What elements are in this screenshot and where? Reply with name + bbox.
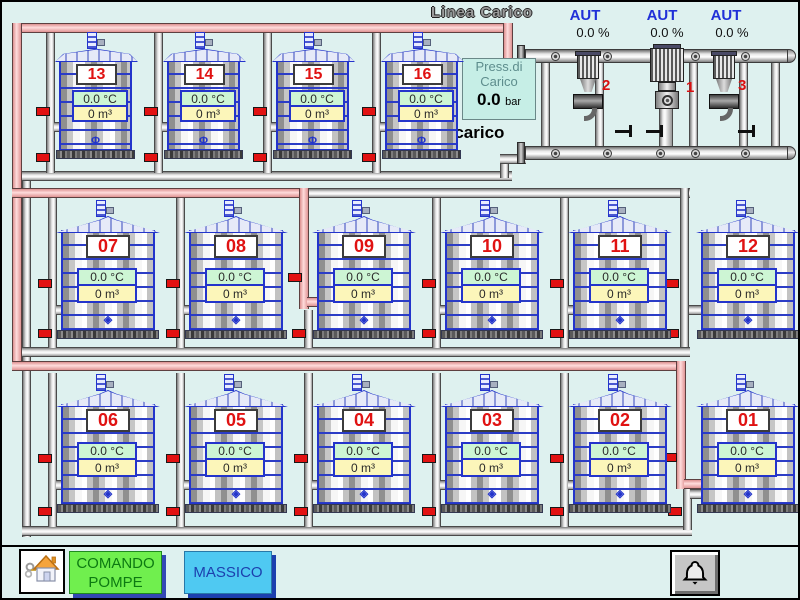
tank-chimney-stub [362, 207, 370, 214]
tank-volume: 0 m³ [77, 458, 137, 477]
tank-base [273, 150, 352, 159]
tank-valve-icon: ◈ [319, 487, 409, 500]
tank-number-plate: 08 [214, 235, 258, 258]
tank-cone [57, 217, 159, 232]
tank-volume: 0 m³ [589, 284, 649, 303]
pipe-endcap [787, 146, 796, 160]
pressure-label: Carico [463, 74, 535, 89]
pump-cone [580, 79, 596, 92]
tank-chimney-stub [746, 381, 754, 388]
tank-valve-icon: ◈ [191, 487, 281, 500]
pipe-segment [541, 60, 550, 148]
tank-volume: 0 m³ [398, 105, 454, 122]
tank-chimney-stub [618, 207, 626, 214]
tank-base [185, 330, 287, 339]
carico-line [12, 361, 686, 371]
tank-volume: 0 m³ [717, 458, 777, 477]
valve-indicator [166, 329, 180, 338]
valve-indicator [144, 153, 158, 162]
valve-indicator [550, 329, 564, 338]
tank-base [313, 330, 415, 339]
home-button[interactable] [19, 549, 65, 594]
tank-valve-icon: ◈ [63, 313, 153, 326]
pipe-segment [680, 188, 689, 352]
alarm-button[interactable] [670, 550, 720, 596]
comando-pompe-button[interactable]: COMANDO POMPE [69, 551, 162, 594]
tank-base [569, 504, 671, 513]
tank-12[interactable]: 12 0.0 °C 0 m³ ◈ [701, 230, 795, 331]
manual-valve-icon [660, 125, 663, 137]
tank-volume: 0 m³ [333, 284, 393, 303]
tank-chimney [87, 32, 97, 49]
valve-indicator [166, 454, 180, 463]
tank-cone [697, 217, 799, 232]
tank-volume: 0 m³ [461, 284, 521, 303]
tank-chimney [352, 200, 362, 217]
pump-speed-value: 0.0 % [707, 25, 757, 40]
tank-number-plate: 11 [598, 235, 642, 258]
tank-chimney-stub [362, 381, 370, 388]
tank-16[interactable]: 16 0.0 °C 0 m³ Φ [385, 59, 458, 151]
pipe-endcap [787, 49, 796, 63]
manual-valve-icon [752, 125, 755, 137]
valve-indicator [362, 153, 376, 162]
tank-10[interactable]: 10 0.0 °C 0 m³ ◈ [445, 230, 539, 331]
pipe-segment [560, 198, 569, 348]
tank-volume: 0 m³ [717, 284, 777, 303]
tank-chimney-stub [97, 39, 105, 46]
pump-mode-label: AUT [704, 7, 748, 24]
valve-indicator [38, 454, 52, 463]
valve-indicator [294, 507, 308, 516]
tank-base [57, 330, 159, 339]
comando-pompe-label-line2: POMPE [70, 573, 161, 592]
tank-number-plate: 02 [598, 409, 642, 432]
pipe-bolt [551, 149, 560, 158]
tank-valve-icon: ◈ [575, 313, 665, 326]
tank-cone [441, 391, 543, 406]
valve-indicator [36, 153, 50, 162]
tank-chimney-stub [490, 381, 498, 388]
tank-cap [382, 49, 463, 61]
tank-chimney [352, 374, 362, 391]
pump-port [662, 95, 673, 106]
pipe-bolt [741, 149, 750, 158]
carico-line [684, 479, 702, 489]
tank-15[interactable]: 15 0.0 °C 0 m³ Φ [276, 59, 349, 151]
tank-valve-icon: ◈ [191, 313, 281, 326]
tank-number-plate: 01 [726, 409, 770, 432]
pipe-bolt [656, 149, 665, 158]
tank-chimney-stub [314, 39, 322, 46]
tank-cone [313, 217, 415, 232]
tank-valve-icon: Φ [169, 135, 238, 147]
pump-speed-value: 0.0 % [568, 25, 618, 40]
valve-indicator [422, 329, 436, 338]
tank-09[interactable]: 09 0.0 °C 0 m³ ◈ [317, 230, 411, 331]
tank-valve-icon: ◈ [63, 487, 153, 500]
valve-indicator [253, 107, 267, 116]
tank-valve-icon: ◈ [447, 313, 537, 326]
valve-indicator [166, 279, 180, 288]
pump-neck [658, 82, 676, 91]
tank-cone [569, 217, 671, 232]
tank-chimney-stub [746, 207, 754, 214]
tank-volume: 0 m³ [289, 105, 345, 122]
pipe-segment [176, 373, 185, 527]
pipe-segment [176, 198, 185, 348]
tank-chimney [480, 200, 490, 217]
pipe-bolt [741, 52, 750, 61]
pipe-segment [739, 60, 748, 148]
valve-indicator [38, 507, 52, 516]
pump-motor [577, 55, 599, 79]
pipe-segment [22, 526, 692, 536]
valve-indicator [550, 454, 564, 463]
pipe-segment [263, 33, 272, 173]
pump-mode-label: AUT [563, 7, 607, 24]
tank-base [697, 330, 799, 339]
tank-chimney-stub [106, 207, 114, 214]
tank-11[interactable]: 11 0.0 °C 0 m³ ◈ [573, 230, 667, 331]
pump-motor [650, 48, 684, 82]
valve-indicator [422, 279, 436, 288]
pressure-value: 0.0 [477, 90, 501, 109]
tank-number-plate: 15 [293, 64, 334, 85]
footer-divider [2, 545, 800, 547]
tank-13[interactable]: 13 0.0 °C 0 m³ Φ [59, 59, 132, 151]
tank-cone [569, 391, 671, 406]
valve-indicator [292, 329, 306, 338]
tank-volume: 0 m³ [461, 458, 521, 477]
tank-number-plate: 03 [470, 409, 514, 432]
tank-volume: 0 m³ [333, 458, 393, 477]
tank-number-plate: 04 [342, 409, 386, 432]
pipe-segment [48, 198, 57, 348]
tank-chimney-stub [106, 381, 114, 388]
tank-chimney [96, 374, 106, 391]
carico-line [503, 23, 513, 61]
pump-spout [720, 108, 733, 121]
tank-cap [273, 49, 354, 61]
pipe-segment [307, 188, 690, 198]
pressure-label: Press.di [463, 59, 535, 74]
tank-number-plate: 16 [402, 64, 443, 85]
tank-base [441, 330, 543, 339]
tank-chimney [96, 200, 106, 217]
pipe-segment [689, 60, 698, 148]
tank-number-plate: 06 [86, 409, 130, 432]
tank-base [441, 504, 543, 513]
tank-01[interactable]: 01 0.0 °C 0 m³ ◈ [701, 404, 795, 505]
pipe-segment [22, 347, 690, 357]
valve-indicator [294, 454, 308, 463]
valve-indicator [665, 279, 679, 288]
tank-chimney [480, 374, 490, 391]
tank-cone [185, 217, 287, 232]
tank-base [382, 150, 461, 159]
tank-number-plate: 10 [470, 235, 514, 258]
tank-06[interactable]: 06 0.0 °C 0 m³ ◈ [61, 404, 155, 505]
valve-indicator [38, 329, 52, 338]
tank-cone [441, 217, 543, 232]
tank-chimney-stub [423, 39, 431, 46]
tank-cone [697, 391, 799, 406]
pipe-segment [46, 33, 55, 173]
tank-14[interactable]: 14 0.0 °C 0 m³ Φ [167, 59, 240, 151]
valve-indicator [288, 273, 302, 282]
valve-indicator [422, 507, 436, 516]
tank-chimney [608, 374, 618, 391]
tank-08[interactable]: 08 0.0 °C 0 m³ ◈ [189, 230, 283, 331]
tank-base [185, 504, 287, 513]
tank-number-plate: 13 [76, 64, 117, 85]
pipe-segment [372, 33, 381, 173]
home-icon [23, 575, 61, 592]
tank-chimney-stub [618, 381, 626, 388]
tank-05[interactable]: 05 0.0 °C 0 m³ ◈ [189, 404, 283, 505]
pipe-segment [154, 33, 163, 173]
tank-base [697, 504, 799, 513]
tank-number-plate: 05 [214, 409, 258, 432]
tank-volume: 0 m³ [72, 105, 128, 122]
pump-number: 3 [738, 77, 746, 94]
pump-number: 2 [602, 77, 610, 94]
tank-chimney [608, 200, 618, 217]
tank-base [56, 150, 135, 159]
pipe-segment [432, 373, 441, 527]
pipe-bolt [551, 52, 560, 61]
tank-number-plate: 07 [86, 235, 130, 258]
valve-indicator [253, 153, 267, 162]
pump-motor [713, 55, 735, 79]
carico-line [12, 188, 309, 198]
valve-indicator [422, 454, 436, 463]
pipe-bolt [691, 52, 700, 61]
tank-03[interactable]: 03 0.0 °C 0 m³ ◈ [445, 404, 539, 505]
tank-volume: 0 m³ [589, 458, 649, 477]
tank-02[interactable]: 02 0.0 °C 0 m³ ◈ [573, 404, 667, 505]
tank-cap [56, 49, 137, 61]
tank-number-plate: 09 [342, 235, 386, 258]
tank-valve-icon: Φ [61, 135, 130, 147]
tank-07[interactable]: 07 0.0 °C 0 m³ ◈ [61, 230, 155, 331]
pipe-bolt [603, 149, 612, 158]
pipe-segment [560, 373, 569, 527]
tank-volume: 0 m³ [205, 458, 265, 477]
tank-chimney [224, 200, 234, 217]
pressure-display: Press.di Carico 0.0 bar [462, 58, 536, 120]
bell-icon [681, 574, 709, 591]
tank-chimney [224, 374, 234, 391]
tank-cone [185, 391, 287, 406]
linea-carico-label: Linea Carico [431, 4, 533, 21]
tank-chimney [304, 32, 314, 49]
valve-indicator [550, 507, 564, 516]
tank-cap [164, 49, 245, 61]
tank-base [569, 330, 671, 339]
tank-valve-icon: Φ [278, 135, 347, 147]
tank-number-plate: 14 [184, 64, 225, 85]
pipe-segment [432, 198, 441, 348]
tank-cone [313, 391, 415, 406]
valve-indicator [144, 107, 158, 116]
valve-indicator [362, 107, 376, 116]
pipe-bolt [691, 149, 700, 158]
tank-chimney [736, 374, 746, 391]
valve-indicator [38, 279, 52, 288]
pump-speed-value: 0.0 % [642, 25, 692, 40]
valve-indicator [36, 107, 50, 116]
valve-indicator [550, 279, 564, 288]
tank-valve-icon: ◈ [575, 487, 665, 500]
tank-valve-icon: ◈ [703, 313, 793, 326]
valve-indicator [166, 507, 180, 516]
pump-mode-label: AUT [640, 7, 684, 24]
scada-tank-farm-screen: 2 1 3 AUT AUT AUT 0.0 % [0, 0, 800, 600]
pump-valve [573, 94, 603, 109]
tank-chimney [736, 200, 746, 217]
manual-valve-icon [629, 125, 632, 137]
tank-chimney-stub [234, 207, 242, 214]
tank-04[interactable]: 04 0.0 °C 0 m³ ◈ [317, 404, 411, 505]
tank-chimney-stub [490, 207, 498, 214]
pipe-segment [48, 373, 57, 527]
tank-volume: 0 m³ [180, 105, 236, 122]
tank-base [164, 150, 243, 159]
tank-cone [57, 391, 159, 406]
tank-valve-icon: ◈ [447, 487, 537, 500]
pressure-unit: bar [505, 96, 521, 108]
pump-cone [716, 79, 732, 92]
pipe-segment [304, 373, 313, 527]
comando-pompe-label-line1: COMANDO [70, 554, 161, 573]
tank-chimney-stub [205, 39, 213, 46]
pressure-value-row: 0.0 bar [463, 90, 535, 110]
tank-number-plate: 12 [726, 235, 770, 258]
tank-valve-icon: ◈ [319, 313, 409, 326]
pipe-flange [517, 142, 525, 164]
carico-line [676, 361, 686, 489]
pump-valve [709, 94, 739, 109]
tank-base [313, 504, 415, 513]
tank-valve-icon: Φ [387, 135, 456, 147]
tank-base [57, 504, 159, 513]
carico-line [299, 188, 309, 309]
massico-button[interactable]: MASSICO [184, 551, 272, 594]
tank-volume: 0 m³ [77, 284, 137, 303]
pipe-segment [771, 60, 780, 148]
tank-valve-icon: ◈ [703, 487, 793, 500]
tank-chimney [413, 32, 423, 49]
pipe-stub [689, 305, 701, 315]
tank-volume: 0 m³ [205, 284, 265, 303]
pump-number: 1 [686, 79, 694, 96]
tank-chimney [195, 32, 205, 49]
tank-chimney-stub [234, 381, 242, 388]
pipe-bolt [603, 52, 612, 61]
